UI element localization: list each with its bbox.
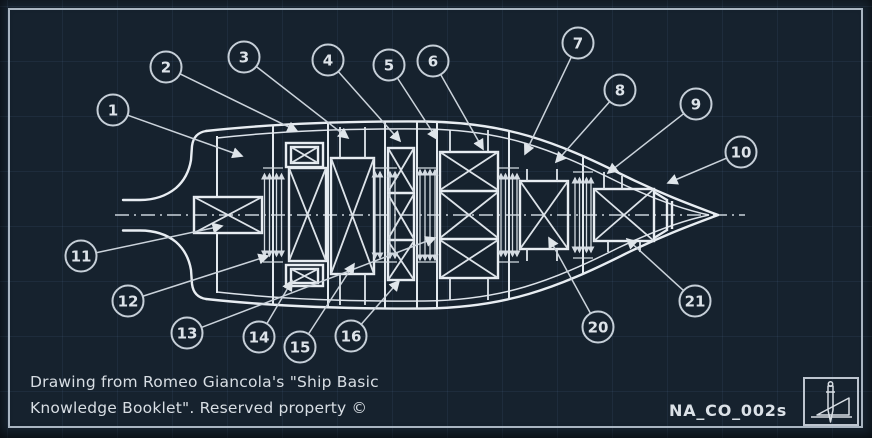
callout-15: 15: [285, 264, 355, 363]
callout-leader-line: [201, 238, 435, 327]
callout-20: 20: [549, 238, 614, 343]
callout-number: 9: [691, 96, 701, 114]
callout-number: 10: [731, 144, 752, 162]
callout-number: 16: [341, 328, 362, 346]
blueprint-canvas: 123456789101112131415162021 Drawing from…: [0, 0, 872, 438]
caption: Drawing from Romeo Giancola's "Ship Basi…: [30, 369, 379, 421]
callout-number: 2: [161, 59, 171, 77]
callout-2: 2: [151, 52, 298, 132]
callout-number: 8: [615, 82, 625, 100]
callout-number: 4: [323, 52, 333, 70]
callout-number: 3: [239, 49, 249, 67]
callout-8: 8: [556, 75, 636, 163]
callout-leader-line: [361, 281, 399, 324]
callout-leader-line: [441, 74, 483, 149]
callout-leader-line: [143, 256, 268, 296]
callout-number: 1: [108, 102, 118, 120]
callout-leader-line: [128, 115, 242, 156]
callout-number: 13: [177, 325, 198, 343]
callout-leader-line: [267, 281, 292, 324]
callout-number: 15: [290, 339, 311, 357]
callout-1: 1: [98, 95, 243, 157]
callout-leader-line: [627, 239, 684, 291]
callout-leader-line: [96, 226, 222, 253]
callout-10: 10: [668, 137, 757, 184]
caption-line2: Knowledge Booklet". Reserved property ©: [30, 395, 379, 421]
callout-number: 7: [573, 35, 583, 53]
callout-9: 9: [608, 89, 712, 174]
callout-number: 11: [71, 248, 92, 266]
callout-leader-line: [338, 72, 400, 141]
callout-7: 7: [525, 28, 594, 155]
caption-line1: Drawing from Romeo Giancola's "Ship Basi…: [30, 369, 379, 395]
callout-number: 5: [384, 57, 394, 75]
title-block-logo-box: [803, 377, 859, 426]
drafting-compass-icon: [805, 379, 857, 424]
callout-16: 16: [336, 281, 400, 352]
callout-leader-line: [525, 57, 571, 154]
callout-21: 21: [627, 239, 711, 317]
callout-number: 14: [249, 329, 270, 347]
callout-leader-line: [668, 158, 727, 183]
callout-number: 12: [118, 293, 139, 311]
callout-leader-line: [256, 67, 348, 138]
document-number: NA_CO_002s: [669, 401, 787, 420]
callout-leader-line: [608, 114, 684, 173]
callout-number: 6: [428, 53, 438, 71]
callout-leader-line: [556, 102, 610, 162]
callout-number: 20: [588, 319, 609, 337]
callout-number: 21: [685, 293, 706, 311]
callout-leader-line: [180, 74, 297, 131]
